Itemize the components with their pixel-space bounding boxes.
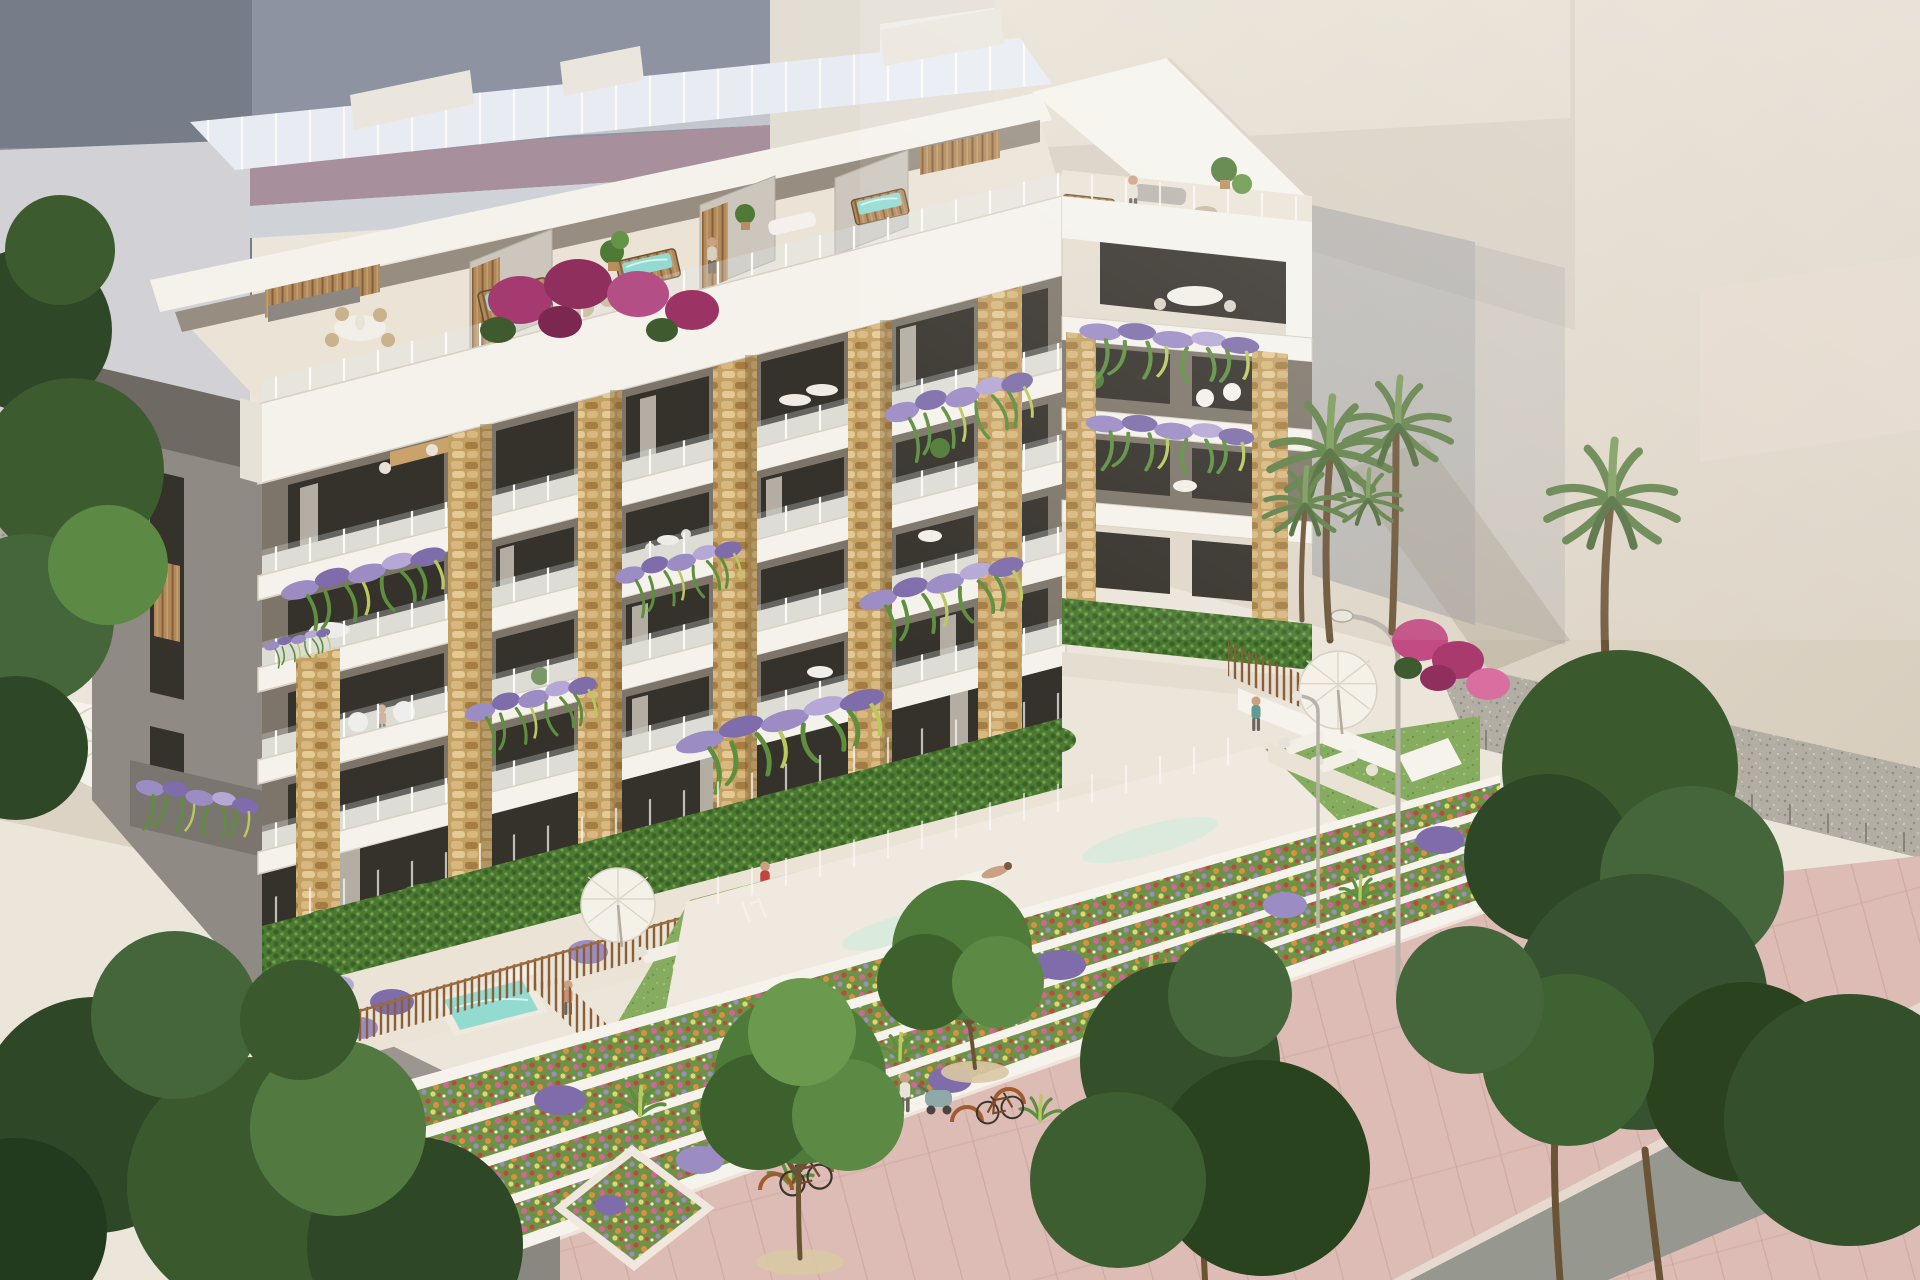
fascia-corner-return (240, 398, 262, 484)
atmospheric-haze (860, 0, 1920, 640)
floor2-seat (807, 666, 833, 678)
render-canvas (0, 0, 1920, 1280)
floor5-lounger (779, 394, 811, 406)
pillar-shade (745, 355, 757, 834)
pillar-shade (480, 424, 492, 903)
architectural-render (0, 0, 1920, 1280)
right-garden-side-table (1366, 764, 1378, 776)
pillar-shade (610, 390, 622, 869)
floor5-lounger (806, 384, 838, 396)
